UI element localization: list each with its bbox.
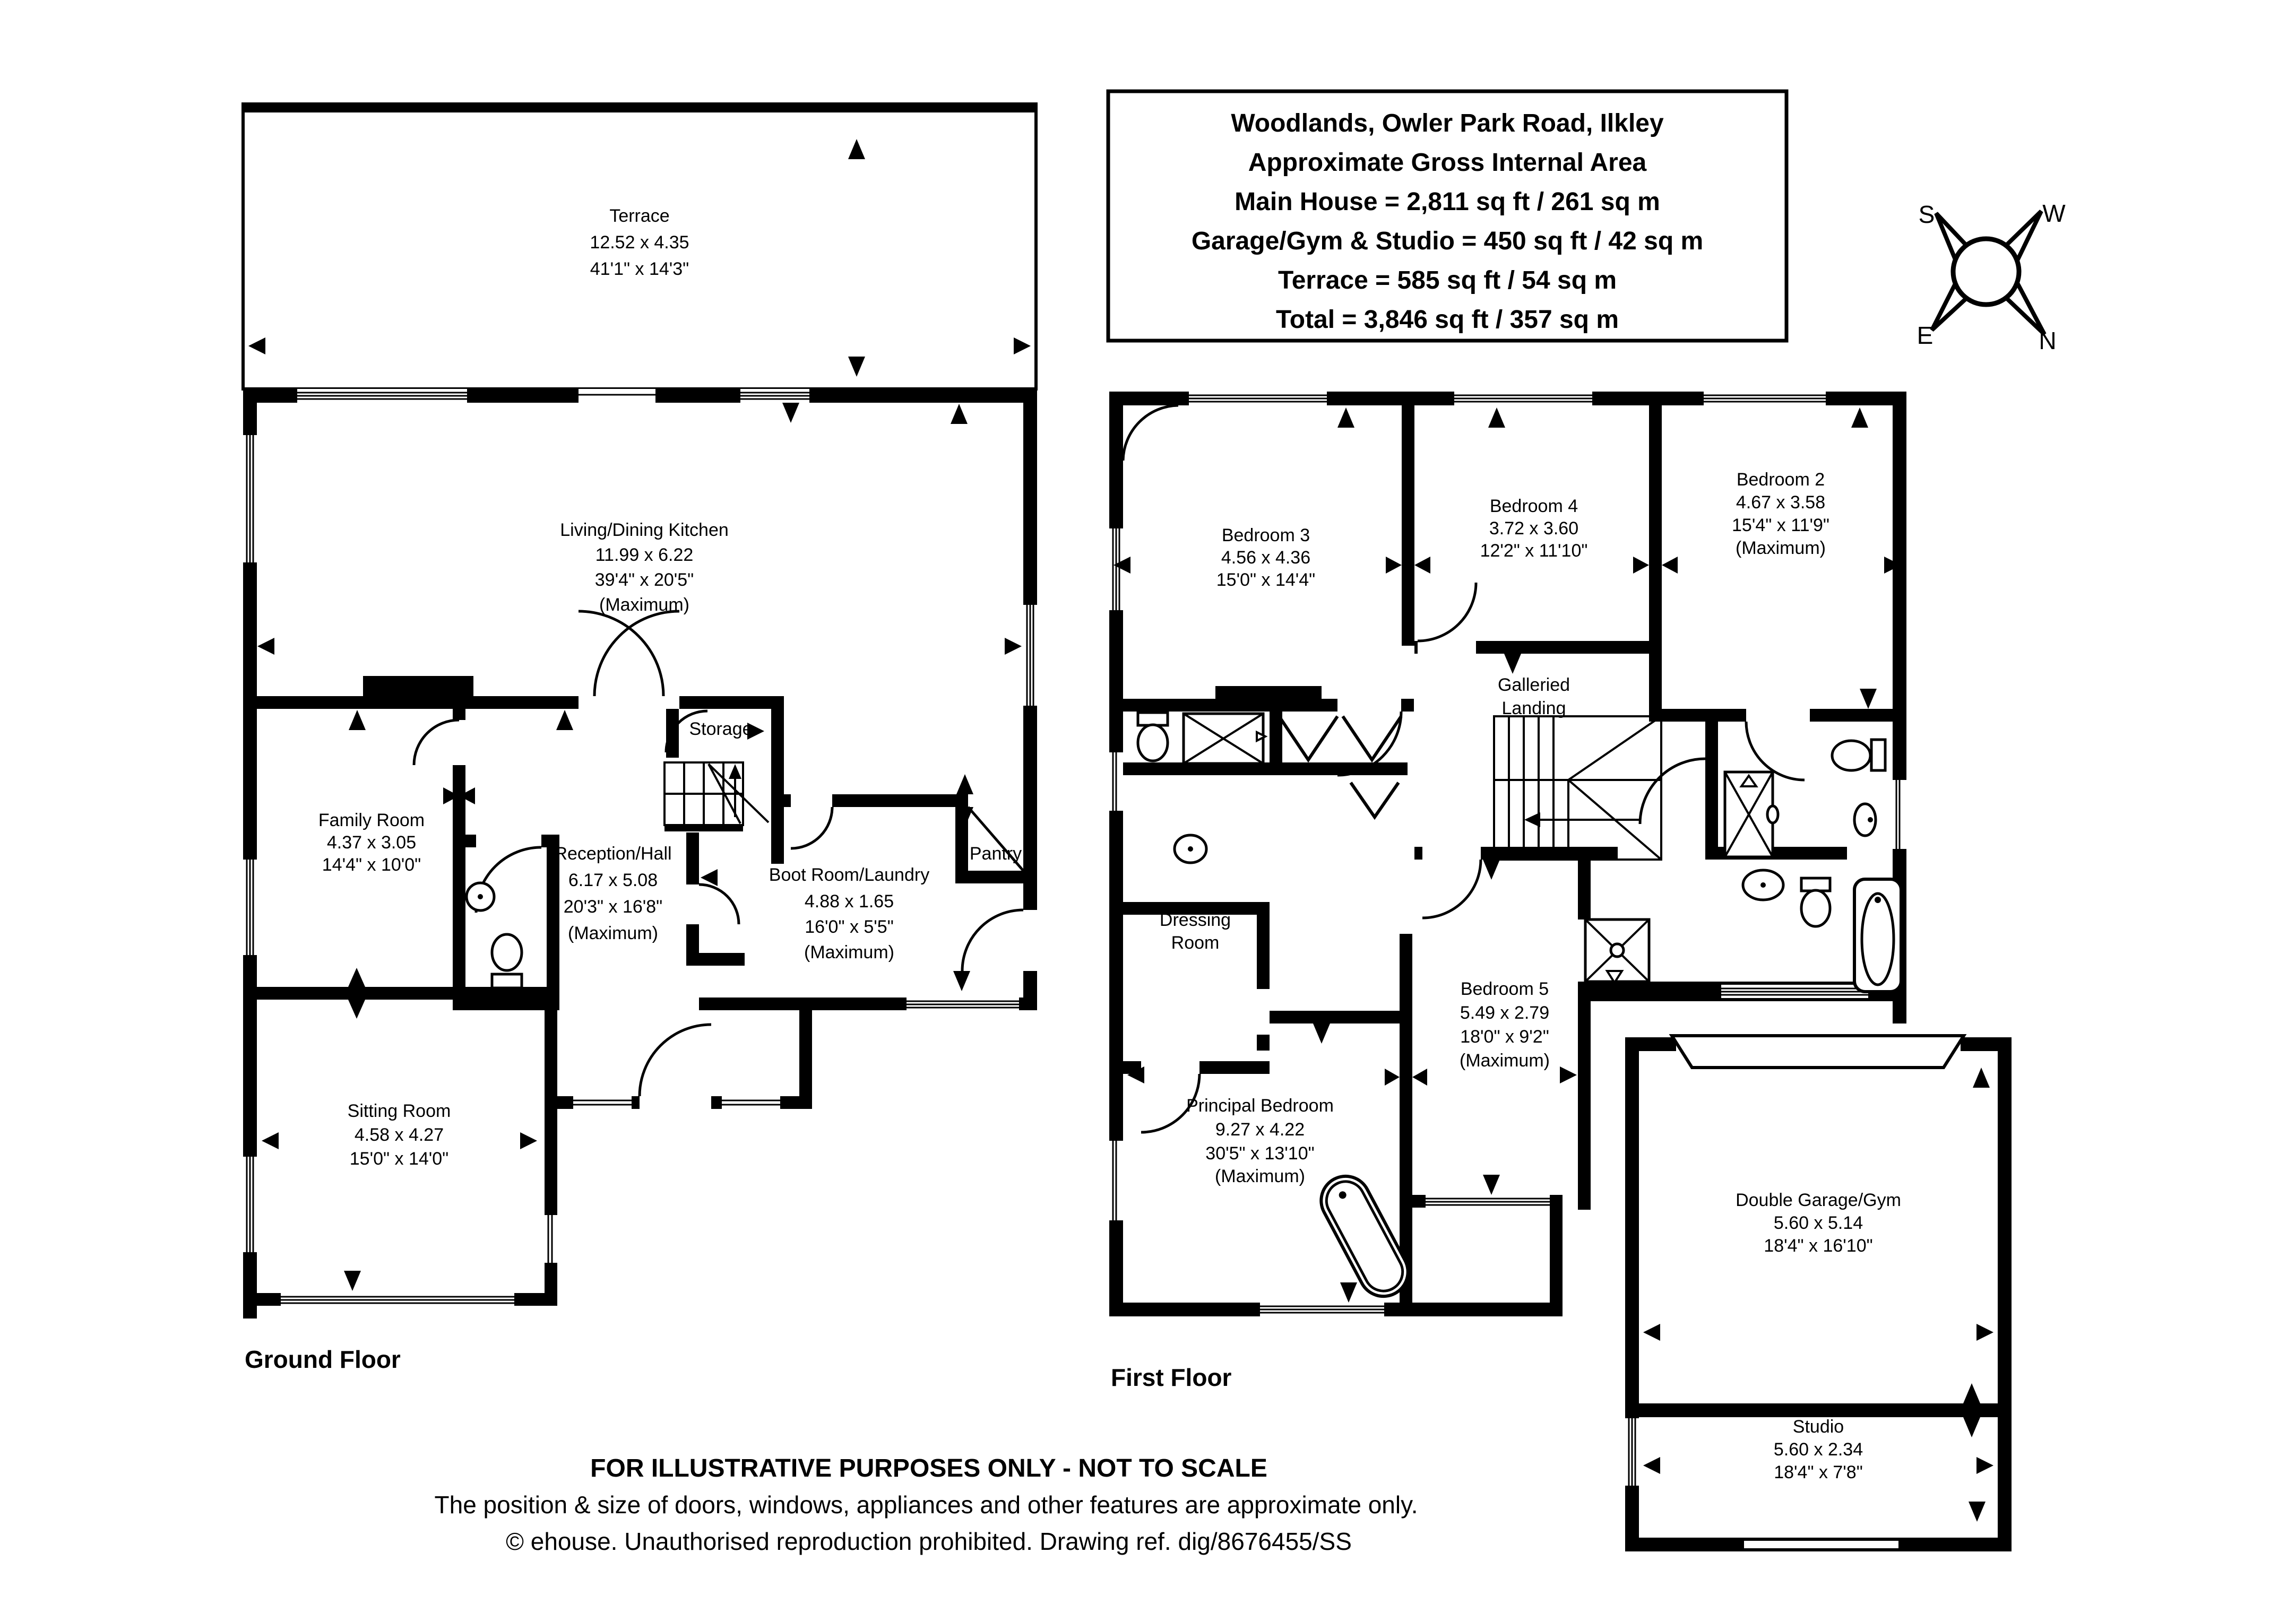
- title-box: Woodlands, Owler Park Road, Ilkley Appro…: [1108, 91, 1786, 341]
- dressing-room-line2: Room: [1171, 933, 1220, 953]
- compass-north-label: N: [2039, 327, 2056, 354]
- title-line-main-house: Main House = 2,811 sq ft / 261 sq m: [1235, 188, 1660, 216]
- compass-west-label: W: [2042, 200, 2066, 227]
- compass-east-label: E: [1917, 322, 1934, 349]
- shower-room-sink-icon: [1854, 804, 1876, 836]
- title-line-total: Total = 3,846 sq ft / 357 sq m: [1276, 306, 1619, 334]
- floorplan-drawing: Woodlands, Owler Park Road, Ilkley Appro…: [0, 0, 2296, 1622]
- family-room-dims-m: 4.37 x 3.05: [327, 832, 416, 853]
- boot-room-dims-ft: 16'0" x 5'5": [805, 917, 894, 937]
- bedroom2-name: Bedroom 2: [1737, 470, 1825, 490]
- studio-dims-ft: 18'4" x 7'8": [1774, 1462, 1863, 1482]
- bedroom3-dims-ft: 15'0" x 14'4": [1216, 570, 1315, 590]
- first-floor-staircase: [1494, 716, 1661, 860]
- garage-door-icon: [1672, 1036, 1964, 1068]
- ensuite-sink-icon: [1175, 835, 1206, 863]
- kitchen-dims-ft: 39'4" x 20'5": [595, 570, 694, 590]
- compass-icon: S W E N: [1917, 200, 2066, 354]
- garage-name: Double Garage/Gym: [1736, 1190, 1901, 1210]
- principal-bedroom-dims-m: 9.27 x 4.22: [1215, 1120, 1305, 1140]
- pantry-name: Pantry: [970, 844, 1022, 864]
- bedroom2-dims-ft: 15'4" x 11'9": [1732, 515, 1829, 535]
- ground-floor-staircase: [664, 762, 769, 825]
- footer-not-to-scale: FOR ILLUSTRATIVE PURPOSES ONLY - NOT TO …: [590, 1454, 1267, 1482]
- kitchen-qualifier: (Maximum): [599, 595, 689, 615]
- footer-disclaimer: FOR ILLUSTRATIVE PURPOSES ONLY - NOT TO …: [435, 1454, 1418, 1555]
- boot-room-dims-m: 4.88 x 1.65: [805, 891, 894, 912]
- family-room-dims-ft: 14'4" x 10'0": [322, 855, 421, 875]
- bedroom5-qualifier: (Maximum): [1460, 1051, 1550, 1071]
- bedroom2-dims-m: 4.67 x 3.58: [1736, 492, 1825, 513]
- bedroom2-qualifier: (Maximum): [1736, 538, 1826, 558]
- bathroom-bathtub-icon: [1854, 879, 1901, 992]
- terrace-dims-m: 12.52 x 4.35: [590, 232, 689, 253]
- title-line-gia: Approximate Gross Internal Area: [1248, 149, 1647, 177]
- bedroom5-dims-m: 5.49 x 2.79: [1460, 1003, 1549, 1023]
- bedroom4-name: Bedroom 4: [1490, 496, 1578, 516]
- kitchen-name: Living/Dining Kitchen: [560, 520, 729, 540]
- sitting-room-dims-ft: 15'0" x 14'0": [350, 1149, 448, 1169]
- shower-room-toilet-icon: [1832, 740, 1885, 770]
- landing-line2: Landing: [1501, 698, 1566, 718]
- bathroom-toilet-icon: [1801, 878, 1830, 926]
- reception-hall-dims-m: 6.17 x 5.08: [568, 870, 658, 890]
- principal-bedroom-dims-ft: 30'5" x 13'10": [1205, 1143, 1314, 1164]
- bedroom3-dims-m: 4.56 x 4.36: [1221, 548, 1310, 568]
- title-line-address: Woodlands, Owler Park Road, Ilkley: [1231, 109, 1664, 137]
- bedroom5-name: Bedroom 5: [1461, 979, 1549, 999]
- terrace-name: Terrace: [609, 206, 669, 226]
- landing-line1: Galleried: [1498, 675, 1570, 695]
- ground-floor-doors: [414, 611, 1023, 1096]
- compass-south-label: S: [1919, 201, 1935, 228]
- footer-copyright: © ehouse. Unauthorised reproduction proh…: [506, 1528, 1352, 1555]
- reception-hall-name: Reception/Hall: [554, 844, 671, 864]
- bedroom5-dims-ft: 18'0" x 9'2": [1460, 1027, 1549, 1047]
- principal-bedroom-name: Principal Bedroom: [1186, 1096, 1334, 1116]
- bedroom4-dims-m: 3.72 x 3.60: [1489, 518, 1578, 539]
- title-line-garage: Garage/Gym & Studio = 450 sq ft / 42 sq …: [1192, 227, 1703, 255]
- kitchen-dims-m: 11.99 x 6.22: [595, 545, 694, 565]
- bedroom3-name: Bedroom 3: [1222, 525, 1310, 545]
- dressing-room-line1: Dressing: [1160, 910, 1231, 930]
- storage-name: Storage: [689, 719, 752, 739]
- title-line-terrace: Terrace = 585 sq ft / 54 sq m: [1278, 266, 1617, 294]
- ensuite-toilet-icon: [1138, 713, 1168, 761]
- ground-floor-plan: Terrace 12.52 x 4.35 41'1" x 14'3" Livin…: [243, 104, 1037, 1373]
- ensuite-shower-icon: [1184, 714, 1265, 764]
- first-floor-title: First Floor: [1111, 1364, 1232, 1391]
- reception-hall-dims-ft: 20'3" x 16'8": [564, 897, 662, 917]
- reception-hall-qualifier: (Maximum): [568, 923, 658, 943]
- principal-bedroom-qualifier: (Maximum): [1215, 1166, 1305, 1186]
- wc-sink-icon: [467, 883, 494, 910]
- bedroom5-shower-icon: [1585, 920, 1649, 983]
- bedroom4-dims-ft: 12'2" x 11'10": [1480, 541, 1588, 561]
- boot-room-qualifier: (Maximum): [804, 942, 894, 962]
- shower-room-shower-icon: [1725, 772, 1778, 857]
- bathroom-sink-icon: [1743, 870, 1783, 900]
- ground-floor-title: Ground Floor: [245, 1346, 401, 1373]
- outbuilding-plan: Double Garage/Gym 5.60 x 5.14 18'4" x 16…: [1625, 1036, 2012, 1551]
- garage-dims-m: 5.60 x 5.14: [1774, 1213, 1863, 1233]
- studio-name: Studio: [1793, 1417, 1844, 1437]
- sitting-room-dims-m: 4.58 x 4.27: [355, 1125, 444, 1145]
- family-room-name: Family Room: [318, 810, 425, 830]
- wc-toilet-icon: [492, 934, 522, 988]
- studio-dims-m: 5.60 x 2.34: [1774, 1439, 1863, 1460]
- floorplan-page: Woodlands, Owler Park Road, Ilkley Appro…: [0, 0, 2296, 1622]
- footer-approximate-note: The position & size of doors, windows, a…: [435, 1491, 1418, 1519]
- outbuilding-labels: Double Garage/Gym 5.60 x 5.14 18'4" x 16…: [1736, 1190, 1901, 1482]
- sitting-room-name: Sitting Room: [348, 1101, 451, 1121]
- terrace-dims-ft: 41'1" x 14'3": [590, 259, 689, 279]
- garage-dims-ft: 18'4" x 16'10": [1764, 1236, 1872, 1256]
- outbuilding-windows: [1625, 1418, 1898, 1548]
- boot-room-name: Boot Room/Laundry: [769, 865, 929, 885]
